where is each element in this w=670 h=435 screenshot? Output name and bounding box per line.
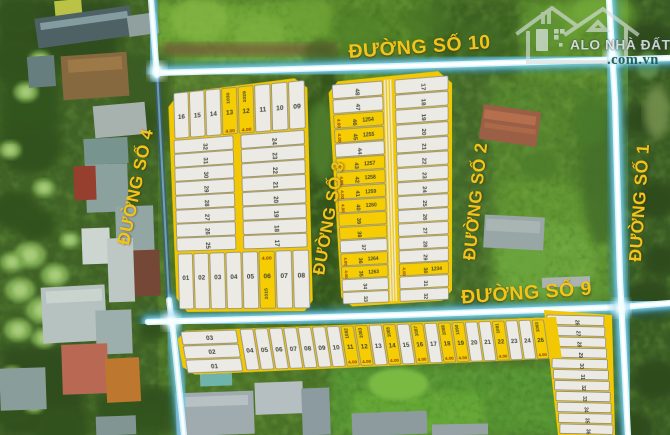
svg-text:ĐƯỜNG SỐ 3: ĐƯỜNG SỐ 3	[308, 160, 348, 277]
svg-text:ALO NHÀ ĐẤT: ALO NHÀ ĐẤT	[570, 37, 670, 53]
svg-text:.com.vn: .com.vn	[607, 52, 659, 68]
svg-text:ĐƯỜNG SỐ 9: ĐƯỜNG SỐ 9	[460, 275, 592, 308]
svg-text:ĐƯỜNG SỐ 2: ĐƯỜNG SỐ 2	[458, 142, 491, 262]
svg-text:ĐƯỜNG SỐ 1: ĐƯỜNG SỐ 1	[624, 143, 653, 262]
svg-text:ĐƯỜNG SỐ 4: ĐƯỜNG SỐ 4	[112, 127, 157, 247]
svg-text:ĐƯỜNG SỐ 10: ĐƯỜNG SỐ 10	[348, 29, 492, 63]
